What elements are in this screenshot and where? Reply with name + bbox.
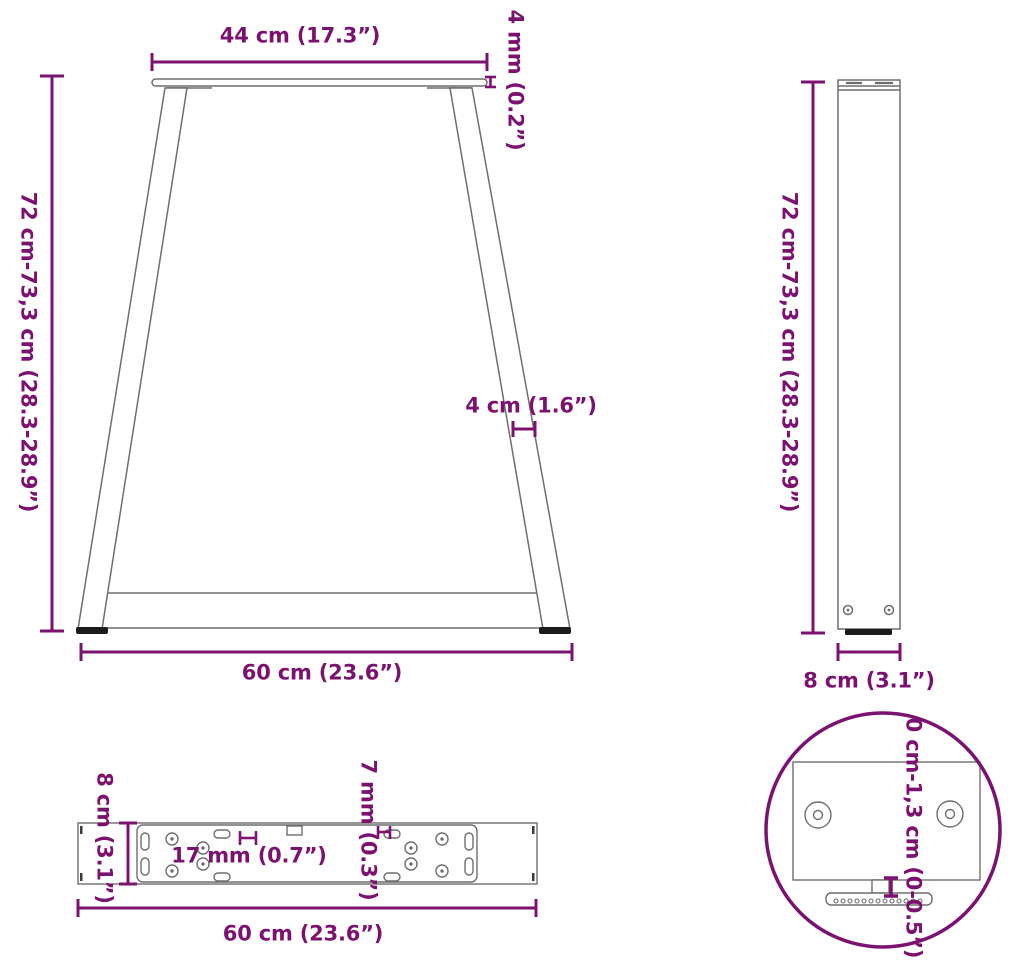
detail-leg-bottom [793,762,980,880]
front-view-drawing [76,79,571,634]
top-corner-screw [532,873,535,881]
side-view-drawing [838,80,900,635]
top-corner-screw [80,826,83,834]
side-depth-dimension [838,643,900,661]
product-dimension-diagram: 44 cm (17.3”) 4 mm (0.2”) 72 cm-73,3 cm … [0,0,1020,968]
front-left-leg [78,88,187,629]
front-top-width-label: 44 cm (17.3”) [220,26,380,47]
detail-height-adjustment-label: 0 cm-1,3 cm (0-0.5”) [903,718,924,959]
side-depth-label: 8 cm (3.1”) [803,671,935,692]
top-small-hole-label: 7 mm (0.3”) [358,760,379,901]
top-corner-screw [532,826,535,834]
top-depth-label: 8 cm (3.1”) [94,772,115,904]
side-screw-right-center [888,609,891,612]
side-height-label: 72 cm-73,3 cm (28.3-28.9”) [779,192,800,513]
detail-view-drawing [766,713,1000,947]
top-center-tab [287,826,302,835]
front-bottom-width-label: 60 cm (23.6”) [242,663,402,684]
top-length-dimension [78,899,536,917]
side-leg-body [838,80,900,629]
front-leg-width-label: 4 cm (1.6”) [465,396,597,417]
top-corner-screw [80,873,83,881]
side-foot [845,629,892,635]
front-right-foot [539,627,571,634]
front-left-foot [76,627,108,634]
front-top-width-dimension [152,53,487,71]
top-length-label: 60 cm (23.6”) [223,924,383,945]
front-height-label: 72 cm-73,3 cm (28.3-28.9”) [18,192,39,513]
top-large-hole-label: 17 mm (0.7”) [171,846,326,867]
front-bottom-width-dimension [81,643,572,661]
front-plate-thickness-label: 4 mm (0.2”) [505,10,526,151]
front-right-leg [450,88,570,629]
side-height-dimension [801,82,825,633]
front-top-plate [152,79,487,86]
side-screw-left-center [847,609,850,612]
detail-foot-stem [872,880,889,893]
front-height-dimension [40,76,64,631]
